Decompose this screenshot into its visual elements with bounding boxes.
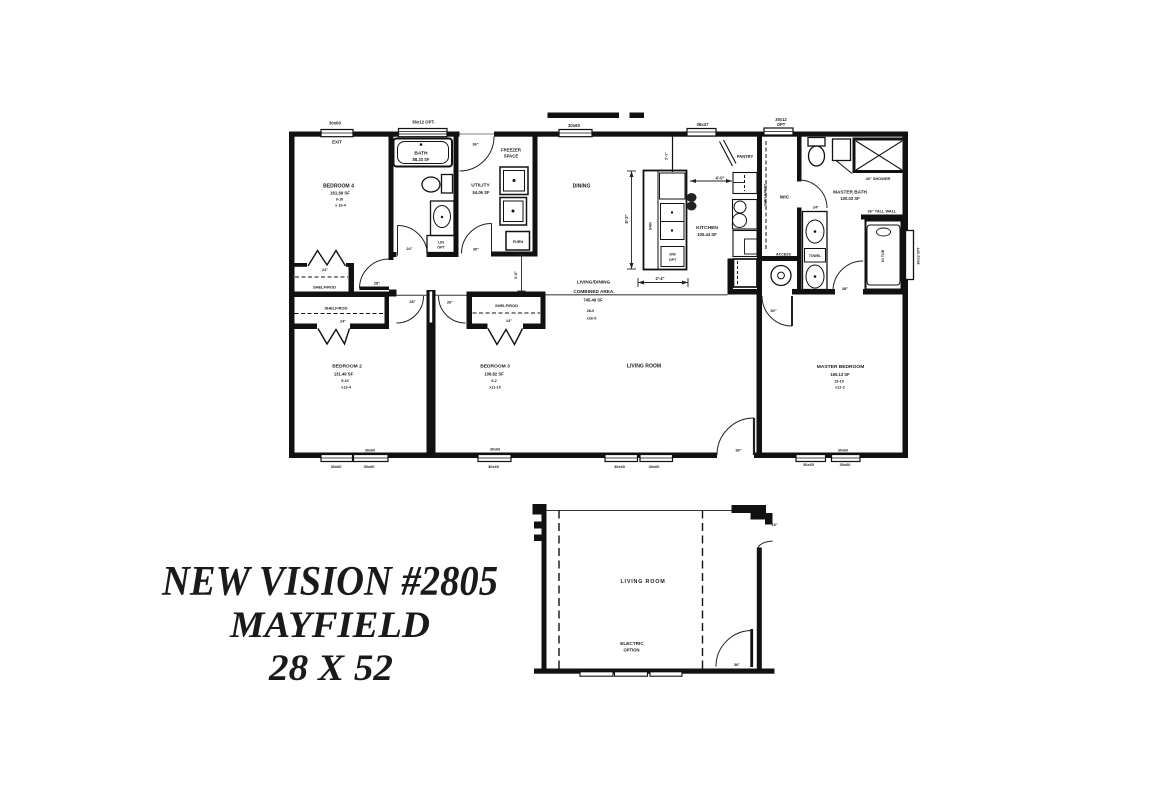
svg-text:SHELF/ROD: SHELF/ROD <box>495 303 518 308</box>
svg-text:SHELF/ROD: SHELF/ROD <box>764 184 768 206</box>
svg-text:MAYFIELD: MAYFIELD <box>229 605 430 646</box>
svg-text:x 16-4: x 16-4 <box>335 204 347 208</box>
svg-text:30x60: 30x60 <box>568 123 581 128</box>
svg-text:36": 36" <box>734 662 740 667</box>
svg-text:9-10: 9-10 <box>336 198 344 202</box>
svg-text:LIN: LIN <box>438 241 444 245</box>
svg-text:30": 30" <box>770 308 776 313</box>
svg-text:9-2: 9-2 <box>491 379 497 383</box>
svg-text:4'-0": 4'-0" <box>715 176 724 181</box>
svg-text:36": 36" <box>472 142 478 147</box>
svg-text:SHELF/ROD: SHELF/ROD <box>313 285 336 290</box>
svg-text:100.03 SF: 100.03 SF <box>840 196 860 201</box>
svg-text:108.82 SF: 108.82 SF <box>484 372 504 377</box>
svg-text:WIC: WIC <box>780 195 790 201</box>
svg-text:36x47: 36x47 <box>697 122 710 127</box>
svg-text:54.06 SF: 54.06 SF <box>473 190 490 195</box>
svg-text:OPT: OPT <box>437 246 445 250</box>
svg-text:131.49 SF: 131.49 SF <box>334 372 354 377</box>
svg-text:MASTER BATH: MASTER BATH <box>833 190 867 195</box>
svg-text:EXIT: EXIT <box>332 140 342 145</box>
svg-text:30x60: 30x60 <box>329 121 342 126</box>
svg-text:28": 28" <box>842 286 848 291</box>
svg-text:28": 28" <box>374 281 380 286</box>
svg-text:SPACE: SPACE <box>504 154 519 159</box>
svg-text:TOWEL: TOWEL <box>809 254 821 258</box>
svg-text:36" TALL WALL: 36" TALL WALL <box>868 209 898 214</box>
svg-text:FURN: FURN <box>513 240 524 244</box>
svg-text:UTILITY: UTILITY <box>471 183 490 189</box>
svg-text:36x12 OPT: 36x12 OPT <box>917 246 921 264</box>
svg-text:SHELF/ROD: SHELF/ROD <box>324 306 347 311</box>
svg-text:30x60: 30x60 <box>840 462 851 467</box>
svg-text:24": 24" <box>322 268 328 272</box>
svg-text:28-0: 28-0 <box>587 309 595 313</box>
svg-text:x11-10: x11-10 <box>489 386 501 390</box>
svg-text:KITCHEN: KITCHEN <box>696 225 718 231</box>
svg-text:NEW VISION #2805: NEW VISION #2805 <box>161 559 498 605</box>
svg-text:30x60: 30x60 <box>838 449 848 453</box>
svg-text:DINING: DINING <box>573 184 591 190</box>
svg-text:24": 24" <box>340 320 346 324</box>
svg-text:3'-0": 3'-0" <box>514 271 518 279</box>
svg-text:BEDROOM 3: BEDROOM 3 <box>480 364 510 370</box>
svg-text:8'-2": 8'-2" <box>624 214 629 223</box>
svg-text:36": 36" <box>735 448 741 453</box>
svg-text:105.44 SF: 105.44 SF <box>697 232 717 237</box>
svg-text:9-10: 9-10 <box>341 379 349 383</box>
svg-text:60 TUB: 60 TUB <box>881 249 885 262</box>
svg-text:30x60: 30x60 <box>365 449 375 453</box>
svg-text:18": 18" <box>771 523 777 527</box>
svg-text:x13-4: x13-4 <box>341 386 352 390</box>
svg-text:24": 24" <box>406 246 412 251</box>
svg-text:30x60: 30x60 <box>490 448 500 452</box>
svg-text:28 X 52: 28 X 52 <box>268 648 393 689</box>
svg-text:88.33 SF: 88.33 SF <box>413 157 430 162</box>
svg-text:161.69 SF: 161.69 SF <box>330 191 350 196</box>
svg-text:BAR: BAR <box>649 222 653 230</box>
svg-text:BATH: BATH <box>414 151 428 157</box>
svg-text:30x60: 30x60 <box>803 462 814 467</box>
svg-text:OPT: OPT <box>777 122 786 127</box>
svg-text:2'-1": 2'-1" <box>665 152 669 160</box>
svg-text:LIVING ROOM: LIVING ROOM <box>620 579 665 585</box>
svg-text:30x60: 30x60 <box>649 464 660 469</box>
svg-text:30x60: 30x60 <box>331 464 342 469</box>
svg-text:LIVING ROOM: LIVING ROOM <box>627 364 661 370</box>
svg-text:FREEZER: FREEZER <box>501 148 522 153</box>
svg-text:28": 28" <box>409 299 415 304</box>
svg-text:24": 24" <box>813 205 819 210</box>
svg-text:36x12 OPT.: 36x12 OPT. <box>412 120 435 125</box>
svg-text:DW: DW <box>669 253 676 257</box>
svg-text:COMBINED AREA.: COMBINED AREA. <box>573 289 614 294</box>
svg-text:PANTRY: PANTRY <box>737 154 754 159</box>
svg-text:30x60: 30x60 <box>614 464 625 469</box>
svg-text:26": 26" <box>447 300 453 305</box>
svg-text:ACCESS: ACCESS <box>776 253 792 257</box>
svg-text:x26-9: x26-9 <box>587 317 597 321</box>
svg-text:30": 30" <box>473 247 479 252</box>
svg-text:2'-4": 2'-4" <box>655 276 664 281</box>
svg-text:OPT: OPT <box>669 258 677 262</box>
svg-text:745.49 SF: 745.49 SF <box>583 298 603 303</box>
svg-text:ELECTRIC: ELECTRIC <box>620 641 644 646</box>
svg-text:BEDROOM 4: BEDROOM 4 <box>323 184 354 190</box>
svg-text:x12-2: x12-2 <box>835 386 845 390</box>
svg-text:OPTION: OPTION <box>623 648 639 653</box>
svg-text:24": 24" <box>506 319 512 323</box>
svg-text:165.13 SF: 165.13 SF <box>830 372 850 377</box>
svg-text:30x60: 30x60 <box>364 464 375 469</box>
svg-text:30x60: 30x60 <box>488 464 499 469</box>
svg-text:13-10: 13-10 <box>834 380 844 384</box>
svg-text:BEDROOM 2: BEDROOM 2 <box>332 364 362 370</box>
svg-text:MASTER BEDROOM: MASTER BEDROOM <box>817 364 865 370</box>
svg-text:40" SHOWER: 40" SHOWER <box>866 176 891 181</box>
svg-text:LIVING/DINING: LIVING/DINING <box>577 280 611 285</box>
